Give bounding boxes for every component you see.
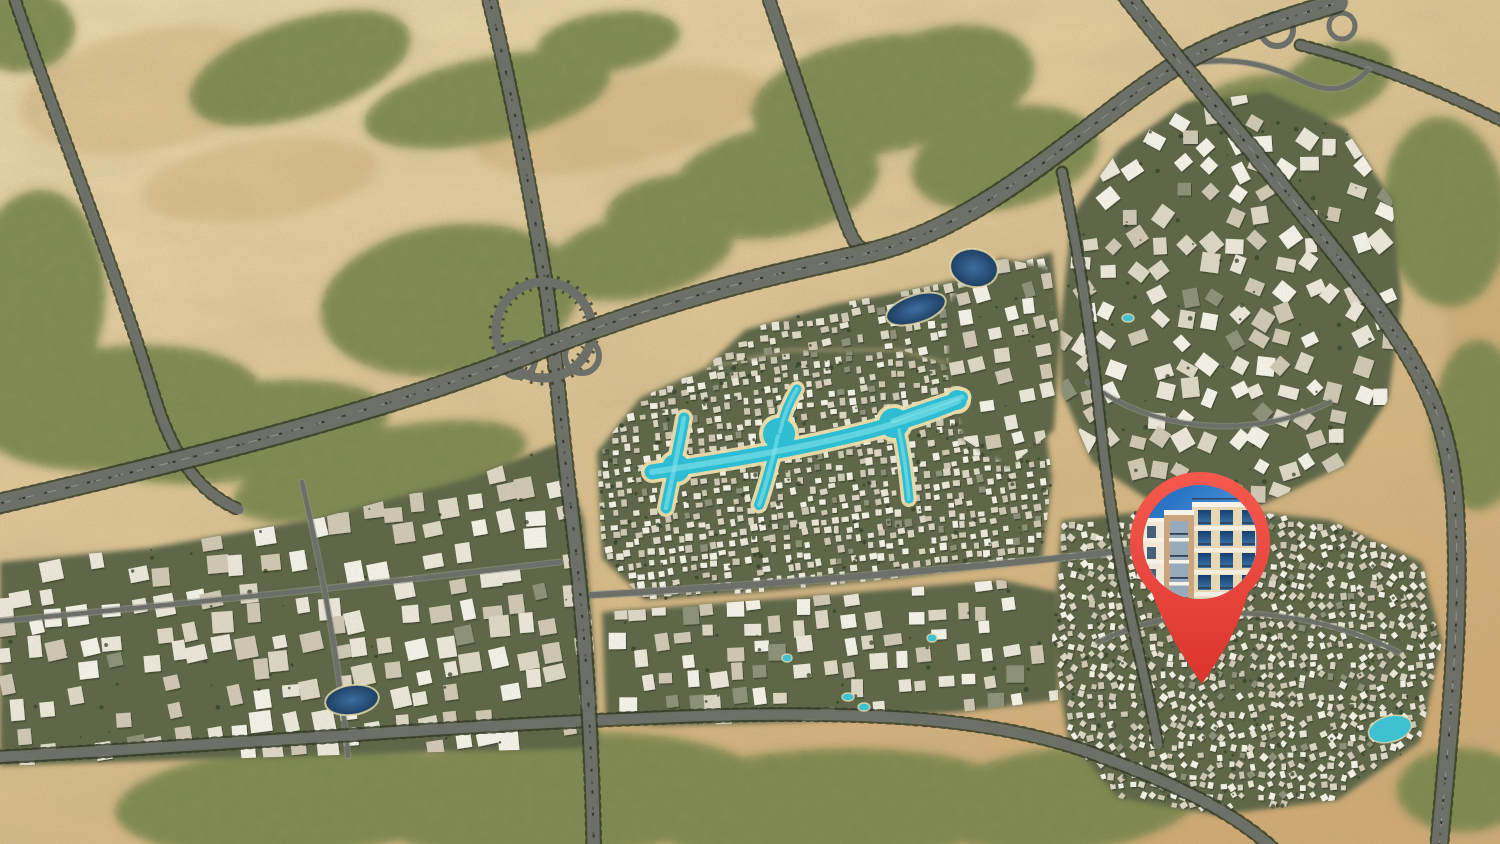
map-canvas xyxy=(0,0,1500,844)
image-grain xyxy=(0,0,1500,844)
masterplan-aerial-map xyxy=(0,0,1500,844)
